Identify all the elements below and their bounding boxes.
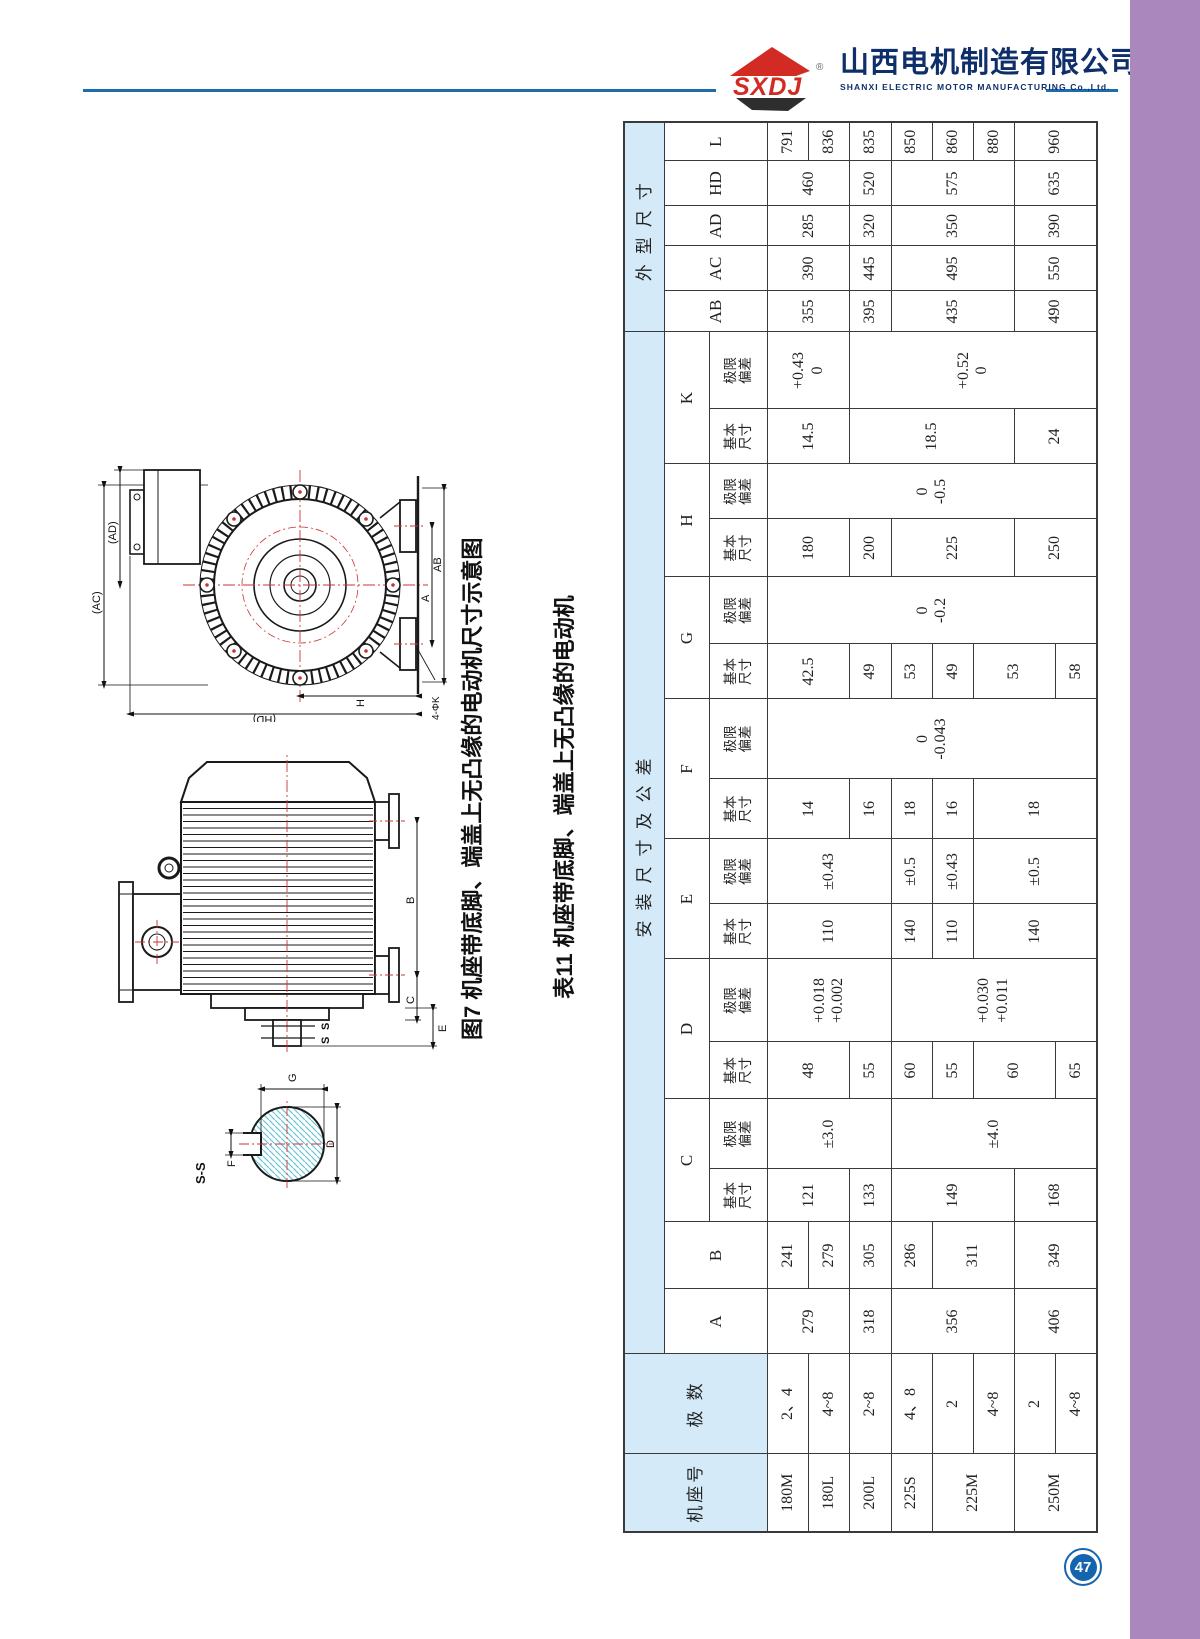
table-cell: ±0.5 <box>973 839 1097 904</box>
table-cell: 16 <box>850 779 891 839</box>
body-fins <box>183 805 373 991</box>
table-header-cell: 极限 偏差 <box>709 959 767 1042</box>
table-cell: 349 <box>1015 1222 1097 1289</box>
catalog-page: SXDJ ® 山西电机制造有限公司 SHANXI ELECTRIC MOTOR … <box>0 0 1200 1639</box>
dim-label-4-phiK: 4-ΦK <box>431 696 442 720</box>
table-cell: 60 <box>891 1042 932 1099</box>
table-header-cell: HD <box>664 161 767 206</box>
dim-label-E: E <box>437 1025 448 1032</box>
table-cell: 250M <box>1015 1454 1097 1532</box>
registered-mark: ® <box>816 62 823 73</box>
table-cell: 225M <box>932 1454 1014 1532</box>
company-logo: SXDJ ® <box>726 40 830 116</box>
table-cell: ±0.43 <box>768 839 892 904</box>
dim-label-C: C <box>405 996 417 1004</box>
table-cell: 18 <box>973 779 1097 839</box>
table-header-cell: D <box>664 959 709 1099</box>
table-header-cell: B <box>664 1222 767 1289</box>
table-cell: 180M <box>768 1454 809 1532</box>
table-header-cell: G <box>664 577 709 699</box>
table-cell: 520 <box>850 161 891 206</box>
table-cell: 445 <box>850 246 891 291</box>
table-cell: 835 <box>850 122 891 161</box>
table-cell: 0 -0.2 <box>768 577 1097 644</box>
header-rule-left <box>83 89 716 92</box>
table-cell: +0.030 +0.011 <box>891 959 1097 1042</box>
dim-label-H: H <box>355 699 367 707</box>
table-cell: 2~8 <box>850 1354 891 1454</box>
company-name-cn: 山西电机制造有限公司 <box>840 48 1140 80</box>
table-cell: 133 <box>850 1169 891 1222</box>
table-header-cell: H <box>664 464 709 577</box>
spec-table: 机座号极 数安装尺寸及公差外型尺寸ABCDEFGHKABACADHDL基本 尺寸… <box>623 121 1098 1533</box>
table-cell: 18 <box>891 779 932 839</box>
table-header-cell: 外型尺寸 <box>624 122 664 332</box>
table-cell: 140 <box>891 904 932 959</box>
page-number-badge: 47 <box>1064 1548 1102 1586</box>
table-cell: 110 <box>768 904 892 959</box>
motor-end-view-drawing: (AC) (AD) <box>88 448 448 722</box>
sxdj-logo-icon: SXDJ <box>726 40 830 116</box>
table-header-cell: L <box>664 122 767 161</box>
table-cell: 200L <box>850 1454 891 1532</box>
section-mark-s2: S <box>320 1023 332 1030</box>
table-cell: 53 <box>973 644 1055 699</box>
table-header-cell: 安装尺寸及公差 <box>624 332 664 1354</box>
table-header-cell: 基本 尺寸 <box>709 1169 767 1222</box>
dim-label-G: G <box>287 1073 299 1082</box>
table-cell: 490 <box>1015 291 1097 332</box>
table-cell: 285 <box>768 206 850 246</box>
table-cell: 320 <box>850 206 891 246</box>
table-cell: ±0.43 <box>932 839 973 904</box>
table-cell: 60 <box>973 1042 1055 1099</box>
table-cell: 355 <box>768 291 850 332</box>
table-cell: 18.5 <box>850 409 1015 464</box>
figure-caption: 图7 机座带底脚、端盖上无凸缘的电动机尺寸示意图 <box>458 553 488 1040</box>
table-header-cell: 极 数 <box>624 1354 768 1454</box>
table-header-cell: 极限 偏差 <box>709 577 767 644</box>
table-cell: 575 <box>891 161 1015 206</box>
table-header-cell: 极限 偏差 <box>709 699 767 779</box>
table-cell: 49 <box>932 644 973 699</box>
table-cell: 390 <box>1015 206 1097 246</box>
table-cell: 305 <box>850 1222 891 1289</box>
table-cell: 4~8 <box>973 1354 1014 1454</box>
table-header-cell: 基本 尺寸 <box>709 1042 767 1099</box>
table-cell: ±0.5 <box>891 839 932 904</box>
table-header-cell: 极限 偏差 <box>709 464 767 519</box>
table-cell: +0.52 0 <box>850 332 1097 409</box>
terminal-box <box>144 470 200 564</box>
table-caption: 表11 机座带底脚、端盖上无凸缘的电动机 <box>549 592 581 1002</box>
table-cell: 49 <box>850 644 891 699</box>
table-cell: 860 <box>932 122 973 161</box>
table-header-cell: 基本 尺寸 <box>709 779 767 839</box>
table-header-cell: C <box>664 1099 709 1222</box>
table-header-cell: 基本 尺寸 <box>709 409 767 464</box>
table-header-cell: AC <box>664 246 767 291</box>
dim-label-A: A <box>420 594 432 602</box>
table-cell: 311 <box>932 1222 1014 1289</box>
table-cell: 635 <box>1015 161 1097 206</box>
dim-label-HD: (HD) <box>253 713 276 722</box>
dim-label-AD: (AD) <box>107 521 119 544</box>
table-header-cell: 极限 偏差 <box>709 1099 767 1169</box>
section-mark-s1: S <box>320 1037 332 1044</box>
table-cell: 180 <box>768 519 850 577</box>
table-header-cell: 极限 偏差 <box>709 332 767 409</box>
table-cell: 460 <box>768 161 850 206</box>
table-cell: 121 <box>768 1169 850 1222</box>
section-title: S-S <box>193 1162 208 1184</box>
table-cell: 110 <box>932 904 973 959</box>
table-cell: 58 <box>1056 644 1097 699</box>
terminal-box-flange <box>119 882 133 1002</box>
table-cell: 250 <box>1015 519 1097 577</box>
shaft-section-drawing: S-S F G D <box>185 1055 345 1192</box>
dimension-table-wrap: 机座号极 数安装尺寸及公差外型尺寸ABCDEFGHKABACADHDL基本 尺寸… <box>623 123 1098 1533</box>
table-cell: 850 <box>891 122 932 161</box>
table-cell: 0 -0.043 <box>768 699 1097 779</box>
table-cell: 225 <box>891 519 1015 577</box>
table-cell: 350 <box>891 206 1015 246</box>
table-cell: 55 <box>850 1042 891 1099</box>
table-cell: ±3.0 <box>768 1099 892 1169</box>
company-name: 山西电机制造有限公司 SHANXI ELECTRIC MOTOR MANUFAC… <box>840 48 1140 92</box>
table-header-cell: AB <box>664 291 767 332</box>
table-cell: 495 <box>891 246 1015 291</box>
fan-cowl <box>181 762 375 802</box>
table-cell: 4~8 <box>809 1354 850 1454</box>
table-cell: +0.43 0 <box>768 332 850 409</box>
table-cell: 149 <box>891 1169 1015 1222</box>
dim-label-AC: (AC) <box>91 591 103 614</box>
table-cell: 4、8 <box>891 1354 932 1454</box>
table-cell: 836 <box>809 122 850 161</box>
table-cell: 168 <box>1015 1169 1097 1222</box>
table-cell: +0.018 +0.002 <box>768 959 892 1042</box>
table-cell: 0 -0.5 <box>768 464 1097 519</box>
table-header-cell: F <box>664 699 709 839</box>
logo-text: SXDJ <box>733 73 802 101</box>
dim-label-B: B <box>405 897 417 904</box>
table-cell: 48 <box>768 1042 850 1099</box>
table-cell: 42.5 <box>768 644 850 699</box>
table-header-cell: 基本 尺寸 <box>709 519 767 577</box>
table-header-cell: AD <box>664 206 767 246</box>
table-cell: 4~8 <box>1056 1354 1097 1454</box>
company-name-en: SHANXI ELECTRIC MOTOR MANUFACTURING Co.,… <box>840 82 1140 92</box>
table-cell: 200 <box>850 519 891 577</box>
table-cell: 880 <box>973 122 1014 161</box>
table-header-cell: 机座号 <box>624 1454 768 1532</box>
table-header-cell: 基本 尺寸 <box>709 904 767 959</box>
table-cell: 550 <box>1015 246 1097 291</box>
table-cell: 14.5 <box>768 409 850 464</box>
table-cell: 140 <box>973 904 1097 959</box>
table-header-cell: K <box>664 332 709 464</box>
table-cell: 65 <box>1056 1042 1097 1099</box>
table-header-cell: 基本 尺寸 <box>709 644 767 699</box>
table-cell: 286 <box>891 1222 932 1289</box>
table-cell: 390 <box>768 246 850 291</box>
dim-label-D: D <box>325 1140 337 1148</box>
table-cell: 791 <box>768 122 809 161</box>
table-header-cell: A <box>664 1289 767 1354</box>
motor-side-view-drawing: S S C B E <box>103 730 448 1052</box>
table-header-cell: 极限 偏差 <box>709 839 767 904</box>
table-cell: 24 <box>1015 409 1097 464</box>
table-cell: 225S <box>891 1454 932 1532</box>
table-cell: 55 <box>932 1042 973 1099</box>
table-cell: 2 <box>1015 1354 1056 1454</box>
table-cell: 395 <box>850 291 891 332</box>
table-cell: 356 <box>891 1289 1015 1354</box>
table-cell: 14 <box>768 779 850 839</box>
table-cell: 16 <box>932 779 973 839</box>
logo-roof-shape <box>730 47 810 76</box>
dim-label-F: F <box>226 1160 238 1167</box>
dim-label-AB: AB <box>432 557 444 572</box>
table-cell: 180L <box>809 1454 850 1532</box>
table-cell: 279 <box>809 1222 850 1289</box>
page-number: 47 <box>1070 1554 1097 1581</box>
table-cell: 2 <box>932 1354 973 1454</box>
table-cell: 318 <box>850 1289 891 1354</box>
table-cell: 53 <box>891 644 932 699</box>
table-cell: ±4.0 <box>891 1099 1097 1169</box>
table-cell: 435 <box>891 291 1015 332</box>
table-cell: 406 <box>1015 1289 1097 1354</box>
table-cell: 2、4 <box>768 1354 809 1454</box>
table-cell: 960 <box>1015 122 1097 161</box>
table-cell: 241 <box>768 1222 809 1289</box>
page-sidebar <box>1130 0 1200 1639</box>
table-header-cell: E <box>664 839 709 959</box>
table-cell: 279 <box>768 1289 850 1354</box>
